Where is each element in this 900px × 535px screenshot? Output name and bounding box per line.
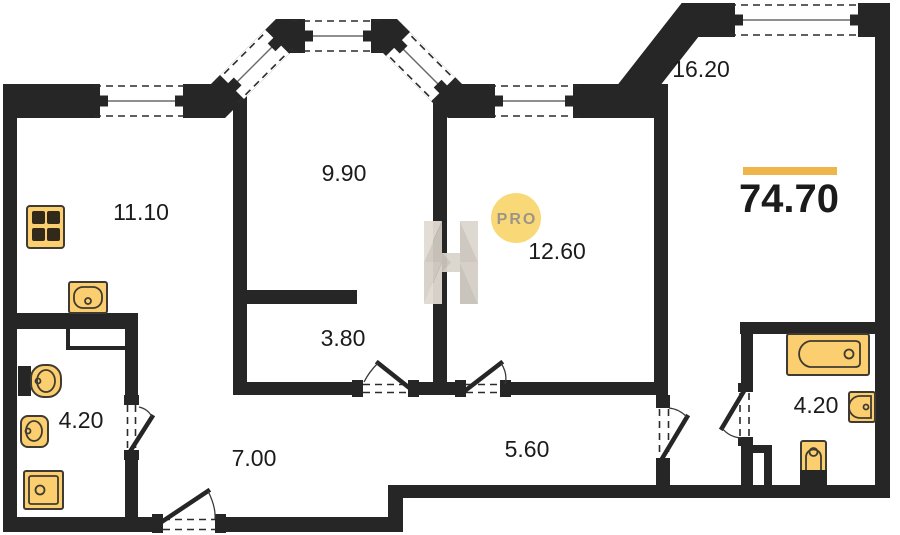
pro-badge: PRO [491, 193, 541, 243]
room-area-living-room: 9.90 [322, 160, 367, 186]
floor-plan: PRO 11.10 9.90 12.60 16.20 3.80 7.00 5.6… [0, 0, 900, 535]
watermark-h-icon [424, 221, 478, 304]
sink-right-icon [849, 392, 875, 422]
bidet-icon [21, 416, 48, 447]
door-bedroom [466, 363, 506, 393]
door-entrance [163, 491, 215, 530]
kitchen-sink-icon [69, 282, 107, 313]
window-room-right [729, 3, 864, 37]
room-area-room-right: 16.20 [672, 56, 730, 82]
door-bathroom-left [128, 405, 153, 450]
toilet-icon [18, 365, 61, 397]
total-area-bar [743, 167, 837, 175]
door-bathroom-right [722, 391, 749, 438]
washing-machine-icon [24, 471, 63, 509]
room-area-corridor: 5.60 [505, 436, 550, 462]
room-area-wardrobe: 3.80 [321, 325, 366, 351]
bathtub-icon [787, 334, 869, 375]
floor-plan-svg: PRO 11.10 9.90 12.60 16.20 3.80 7.00 5.6… [0, 0, 900, 535]
room-area-kitchen: 11.10 [113, 199, 169, 225]
door-vestibule [660, 408, 688, 457]
total-area-value: 74.70 [739, 177, 839, 221]
window-bedroom [489, 84, 579, 118]
room-area-bathroom-left: 4.20 [59, 407, 104, 433]
window-kitchen [94, 84, 189, 118]
toilet-right-icon [800, 441, 827, 486]
pro-badge-text: PRO [497, 211, 538, 228]
duct-niche [68, 329, 125, 348]
door-wardrobe [363, 363, 412, 393]
bay-window-top [291, 19, 385, 53]
stove-icon [27, 206, 64, 248]
room-area-hallway: 7.00 [232, 445, 277, 471]
room-area-bedroom: 12.60 [528, 238, 586, 264]
room-area-bathroom-right: 4.20 [794, 392, 839, 418]
